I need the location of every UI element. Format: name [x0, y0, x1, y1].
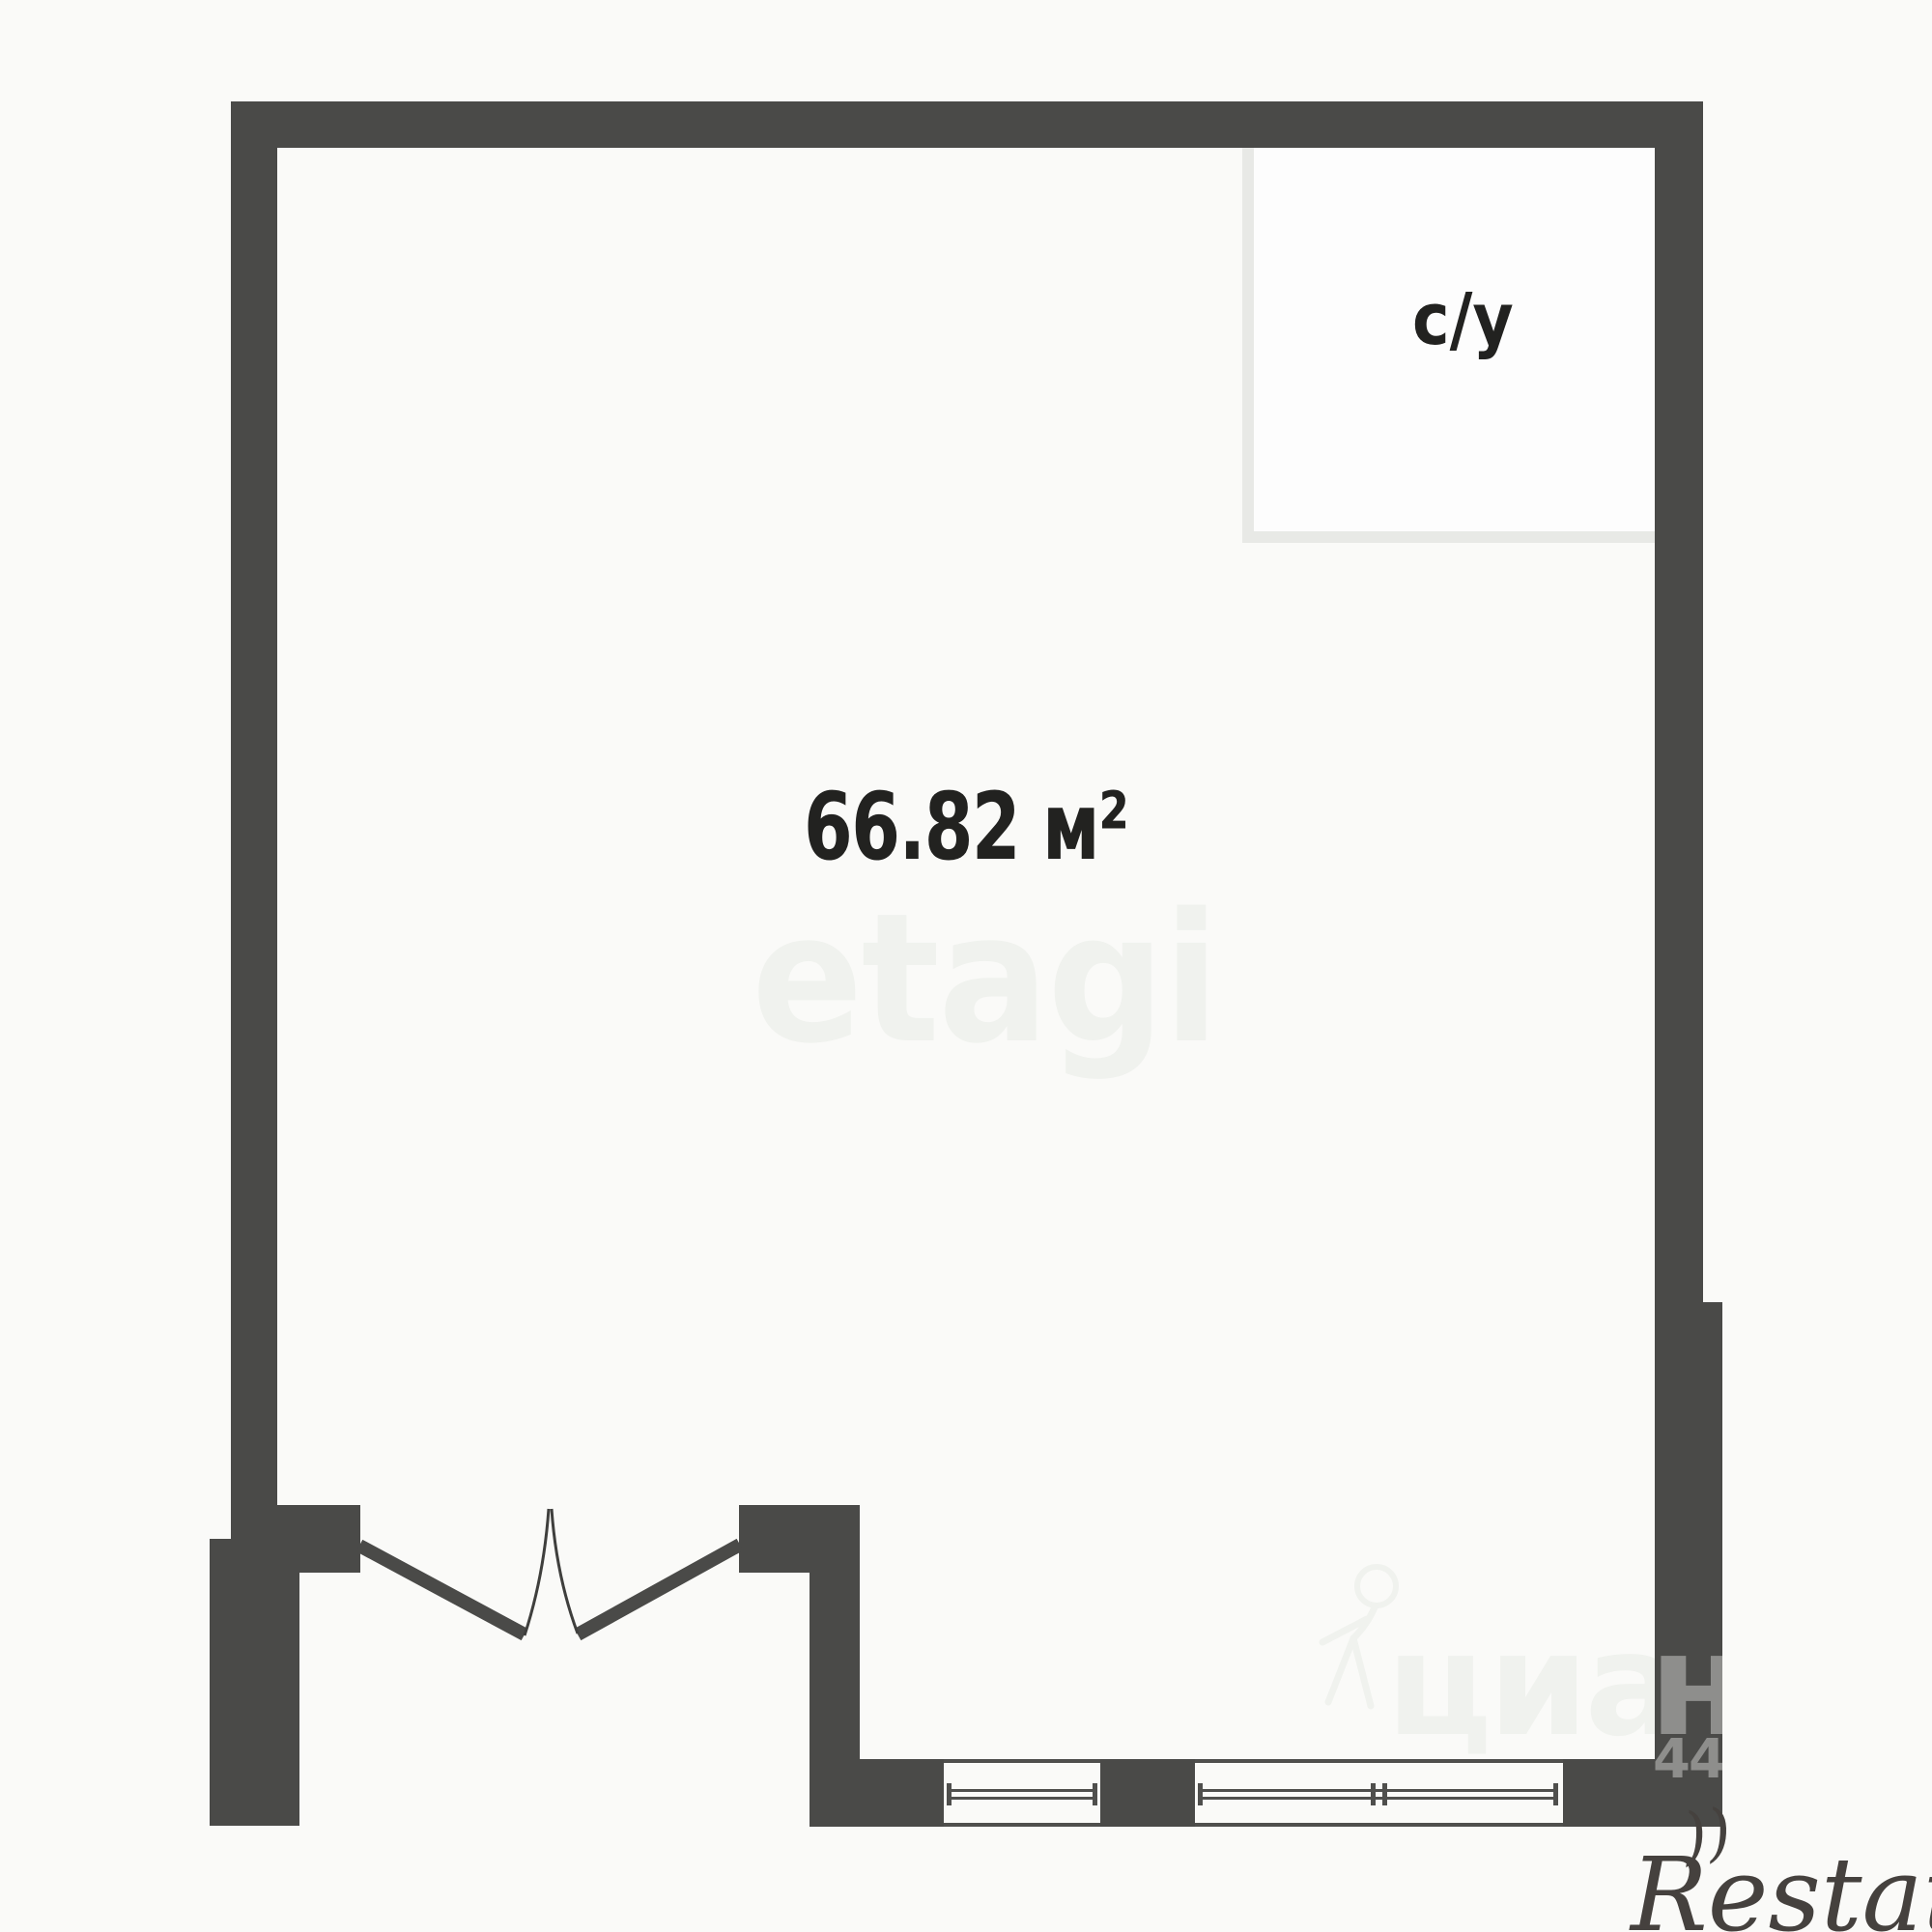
window-1-inner-line: [944, 1823, 1100, 1827]
door-leaf-right: [578, 1545, 740, 1634]
door-jamb-right: [739, 1505, 860, 1573]
window-1: [944, 1759, 1100, 1827]
wall-left: [231, 101, 277, 1573]
entry-door: [359, 1509, 740, 1635]
bottom-wall-pier-middle: [1100, 1759, 1195, 1827]
bathroom-label: с/у: [1412, 278, 1514, 361]
window-2-tick-mid-a: [1371, 1783, 1376, 1805]
window-2-tick-mid-b: [1382, 1783, 1387, 1805]
window-1-tick-right: [1093, 1783, 1097, 1805]
window-1-glass-line-a: [950, 1789, 1094, 1792]
window-2-glass-line-a: [1201, 1789, 1556, 1792]
window-1-glass-line-b: [950, 1797, 1094, 1800]
window-1-tick-left: [947, 1783, 952, 1805]
door-leaf-left: [359, 1546, 525, 1634]
wall-top: [231, 101, 1703, 148]
window-1-outer-line: [944, 1759, 1100, 1763]
window-2: [1195, 1759, 1563, 1827]
wall-below-jamb-right: [810, 1573, 860, 1761]
bathroom-partition-horizontal: [1242, 531, 1655, 543]
watermark-cian-digits: 440: [1655, 1733, 1722, 1787]
room-area-label: 66.82 м²: [804, 773, 1128, 881]
door-swing-arc-right: [552, 1509, 578, 1634]
watermark-restate: Restate: [1631, 1835, 1932, 1932]
window-2-inner-line: [1195, 1823, 1563, 1827]
floor-plan-drawing: [0, 0, 1932, 1932]
bathroom-partition-vertical: [1242, 148, 1254, 543]
door-swing-arc-left: [525, 1509, 549, 1635]
wall-right-upper: [1655, 101, 1703, 1302]
window-2-tick-left: [1198, 1783, 1203, 1805]
bottom-wall-pier-left: [810, 1759, 944, 1827]
window-2-tick-right: [1553, 1783, 1558, 1805]
wall-pier-bottom-left: [210, 1539, 299, 1826]
window-2-outer-line: [1195, 1759, 1563, 1763]
floor-plan-canvas: etagi циан: [0, 0, 1932, 1932]
watermark-cian-on-wall: н 440: [1655, 1613, 1722, 1826]
window-2-glass-line-b: [1201, 1797, 1556, 1800]
